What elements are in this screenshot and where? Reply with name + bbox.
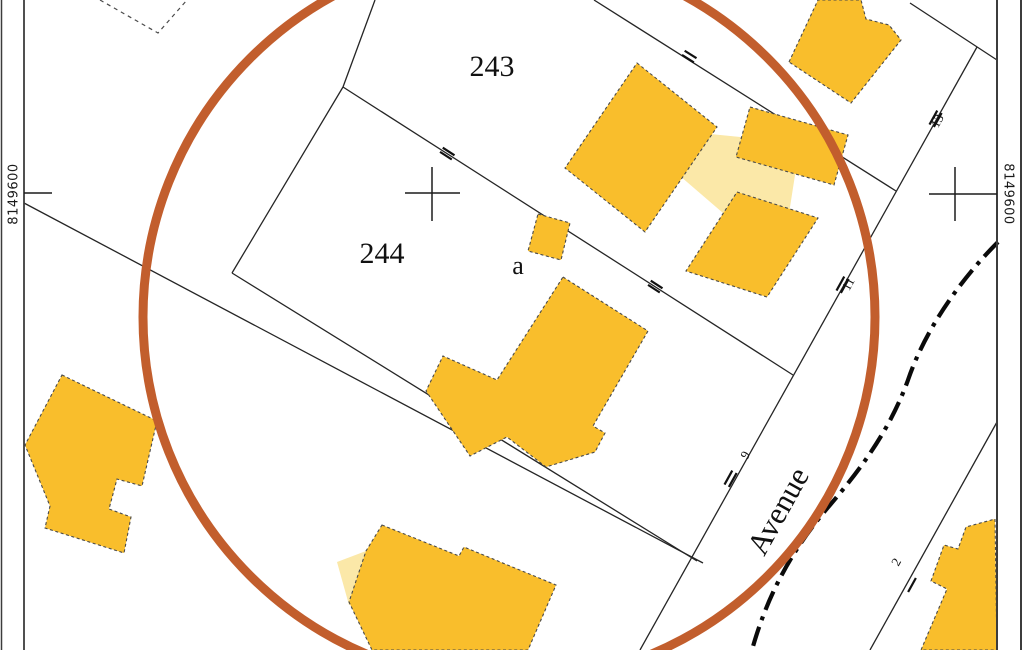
house-number-2: 2 <box>888 555 904 568</box>
grid-cross-icon <box>929 167 997 221</box>
boundary-tick <box>724 471 736 487</box>
house-number-13: 13 <box>927 111 946 130</box>
grid-cross-icon <box>405 167 460 221</box>
parcel-244-label: 244 <box>360 237 405 270</box>
building-footprint <box>25 375 157 553</box>
parcel-boundary-line <box>343 0 375 87</box>
building-footprint <box>565 63 717 232</box>
building-footprint <box>686 192 818 297</box>
grid-coordinate-label-right: 8149600 <box>1001 163 1016 224</box>
cadastral-map: 8149600 8149600 243 244 a Avenue 9 11 13… <box>0 0 1025 650</box>
boundary-tick <box>682 51 697 63</box>
house-number-9: 9 <box>737 448 753 461</box>
parcel-boundary-line <box>232 87 343 273</box>
building-footprint <box>528 214 570 260</box>
building-footprint <box>349 525 556 650</box>
street-name-label: Avenue <box>740 461 816 560</box>
sub-parcel-a-label: a <box>512 251 524 280</box>
dashed-boundary <box>100 0 187 33</box>
building-footprint <box>789 0 901 103</box>
grid-coordinate-label-left: 8149600 <box>7 163 22 224</box>
parcel-243-label: 243 <box>470 50 515 83</box>
building-footprints <box>25 0 997 650</box>
map-frame: 8149600 8149600 <box>2 0 1022 650</box>
parcel-boundary-line <box>910 3 997 60</box>
map-canvas: 8149600 8149600 243 244 a Avenue 9 11 13… <box>0 0 1025 650</box>
building-footprint <box>426 277 648 467</box>
